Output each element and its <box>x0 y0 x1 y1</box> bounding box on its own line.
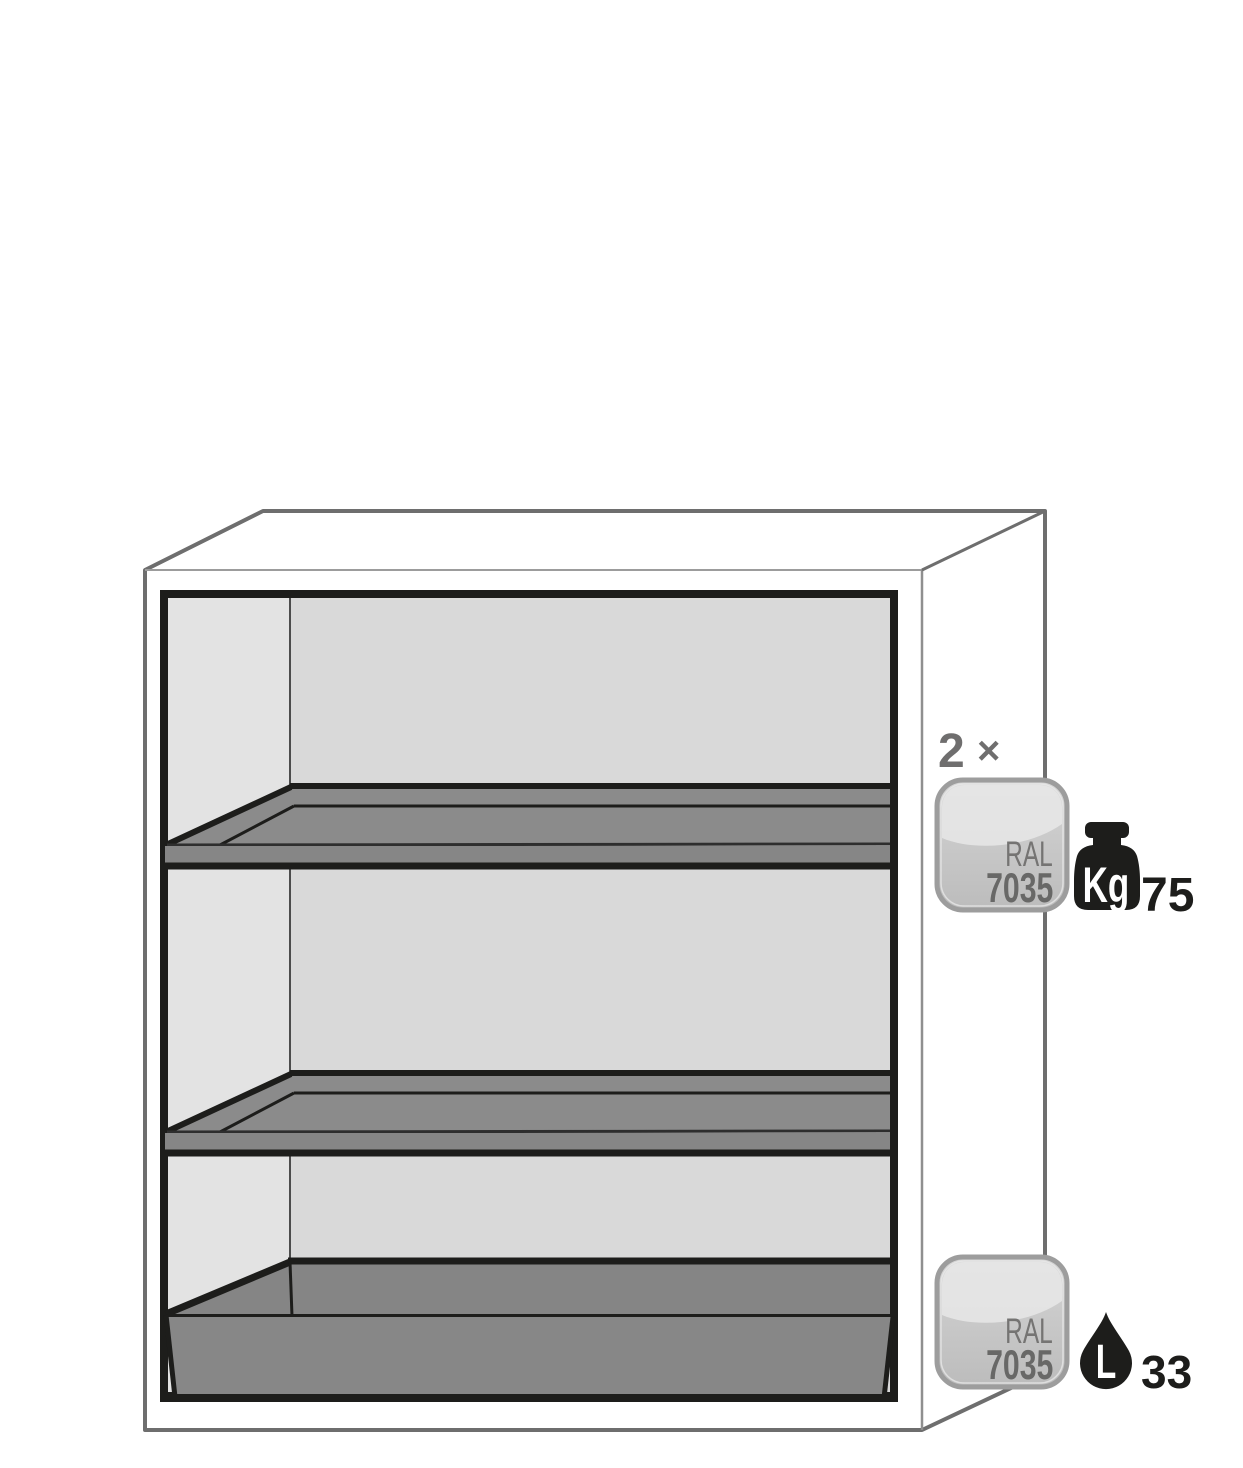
illustration-canvas: 2 × RAL 7035 RAL 7035 Kg 75 L 33 <box>0 0 1243 1468</box>
shelf-top-surface <box>170 1076 890 1133</box>
cabinet <box>145 511 1045 1430</box>
sump-volume-value: 33 <box>1141 1346 1192 1398</box>
shelf-front-top-line <box>167 844 890 845</box>
load-capacity-annotation: Kg 75 <box>1074 822 1194 922</box>
shelf-front-top-line <box>167 1131 890 1132</box>
badge-ral-code: 7035 <box>986 864 1053 911</box>
quantity-value: 2 <box>938 725 965 778</box>
sump-tray <box>166 1261 893 1398</box>
load-capacity-value: 75 <box>1141 869 1194 922</box>
shelf-top-surface <box>170 789 890 846</box>
droplet-icon-unit: L <box>1096 1334 1117 1388</box>
quantity-symbol: × <box>977 729 1000 773</box>
droplet-icon: L <box>1080 1312 1132 1389</box>
badge-ral-code: 7035 <box>986 1341 1053 1388</box>
sump-volume-annotation: L 33 <box>1080 1312 1192 1398</box>
weight-icon-handle <box>1085 822 1129 838</box>
cabinet-illustration: 2 × RAL 7035 RAL 7035 Kg 75 L 33 <box>0 0 1243 1468</box>
sump-color-badge: RAL 7035 <box>937 1257 1067 1388</box>
shelf-top <box>161 786 897 866</box>
shelf-middle <box>161 1073 897 1153</box>
shelf-front-face <box>165 1133 890 1150</box>
sump-front-wall <box>166 1317 893 1397</box>
weight-icon-unit: Kg <box>1083 858 1130 914</box>
sump-inner-corner-line <box>290 1262 292 1316</box>
shelf-color-badge: RAL 7035 <box>937 780 1067 911</box>
shelf-front-face <box>165 846 890 863</box>
weight-icon: Kg <box>1074 822 1140 914</box>
